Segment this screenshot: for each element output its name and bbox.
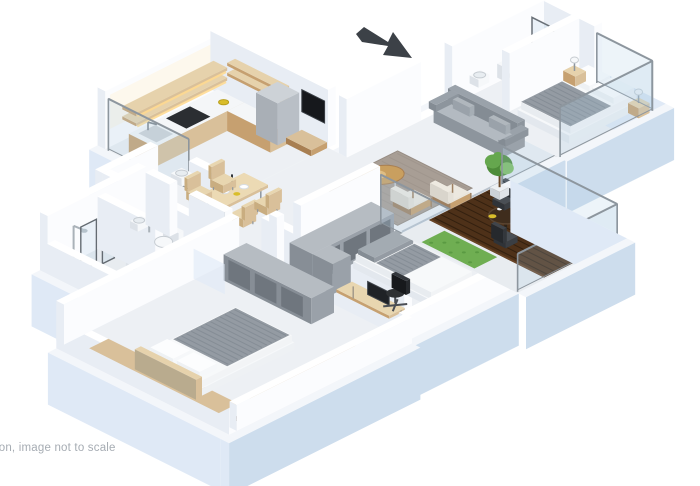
fruit-bowl-icon (219, 100, 229, 105)
entrance-arrow-icon (356, 27, 412, 58)
isometric-apartment-scene (0, 0, 700, 486)
floor-plan-render: ation, image not to scale (0, 0, 700, 486)
disclaimer-text: ation, image not to scale (0, 442, 116, 454)
